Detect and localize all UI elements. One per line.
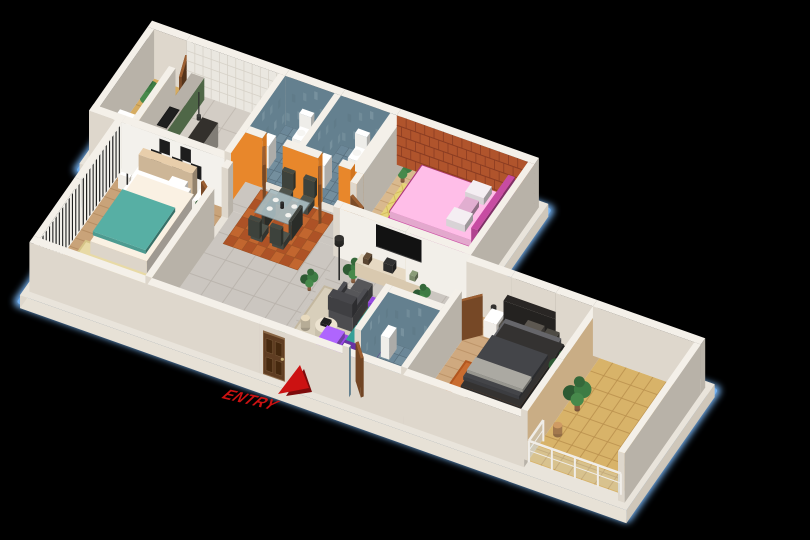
round-stool — [301, 315, 310, 331]
wall-bath3-left-b — [343, 343, 351, 397]
bathroom1-door — [262, 146, 265, 204]
floor-plan-3d-render: ENTRY — [0, 0, 810, 540]
dinner-plate-1 — [273, 198, 279, 202]
bathroom2-door — [318, 166, 321, 224]
dinner-plate-3 — [267, 206, 273, 210]
dinner-plate-4 — [285, 213, 291, 217]
entry-door — [263, 330, 285, 382]
dining-centerpiece — [280, 201, 284, 209]
master-door — [459, 294, 483, 342]
wall-bedroom2-right-a — [222, 159, 234, 218]
dinner-plate-2 — [291, 204, 297, 208]
isometric-scene: ENTRY — [0, 0, 810, 540]
balcony-pot — [553, 422, 562, 438]
